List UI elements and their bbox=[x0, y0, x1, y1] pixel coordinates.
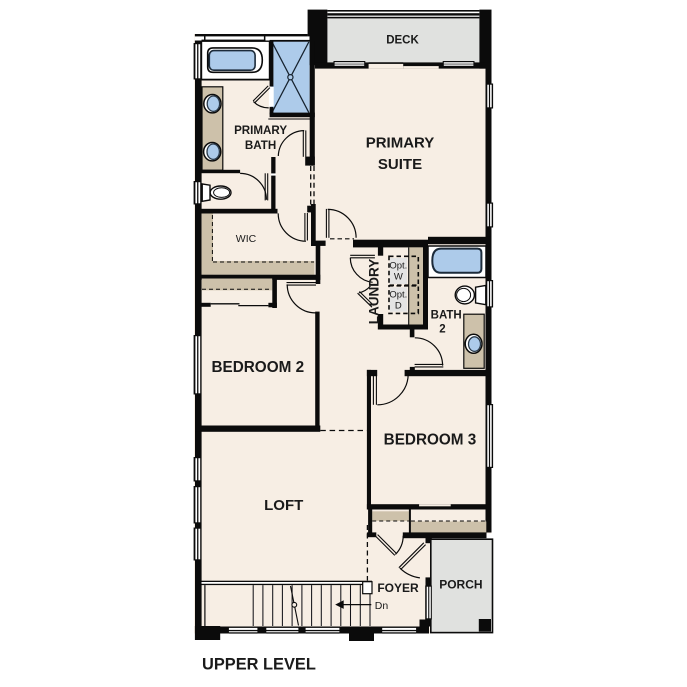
svg-text:Opt.: Opt. bbox=[389, 260, 407, 271]
svg-text:BEDROOM 3: BEDROOM 3 bbox=[384, 432, 477, 449]
svg-text:W: W bbox=[394, 271, 403, 282]
svg-text:PRIMARY: PRIMARY bbox=[366, 135, 435, 152]
svg-text:PORCH: PORCH bbox=[439, 578, 482, 592]
svg-text:FOYER: FOYER bbox=[377, 581, 419, 595]
svg-text:UPPER LEVEL: UPPER LEVEL bbox=[202, 656, 316, 674]
svg-text:WIC: WIC bbox=[236, 233, 257, 245]
svg-text:BATH: BATH bbox=[245, 139, 276, 152]
svg-text:SUITE: SUITE bbox=[378, 156, 422, 173]
svg-text:D: D bbox=[395, 300, 402, 311]
svg-text:Opt.: Opt. bbox=[389, 289, 407, 300]
svg-text:2: 2 bbox=[439, 324, 445, 336]
svg-text:Dn: Dn bbox=[375, 600, 389, 612]
svg-text:DECK: DECK bbox=[386, 35, 419, 47]
svg-text:BATH: BATH bbox=[431, 310, 462, 322]
svg-text:LAUNDRY: LAUNDRY bbox=[367, 259, 382, 325]
svg-text:PRIMARY: PRIMARY bbox=[234, 124, 287, 137]
svg-text:BEDROOM 2: BEDROOM 2 bbox=[211, 359, 304, 376]
svg-text:LOFT: LOFT bbox=[264, 497, 303, 514]
